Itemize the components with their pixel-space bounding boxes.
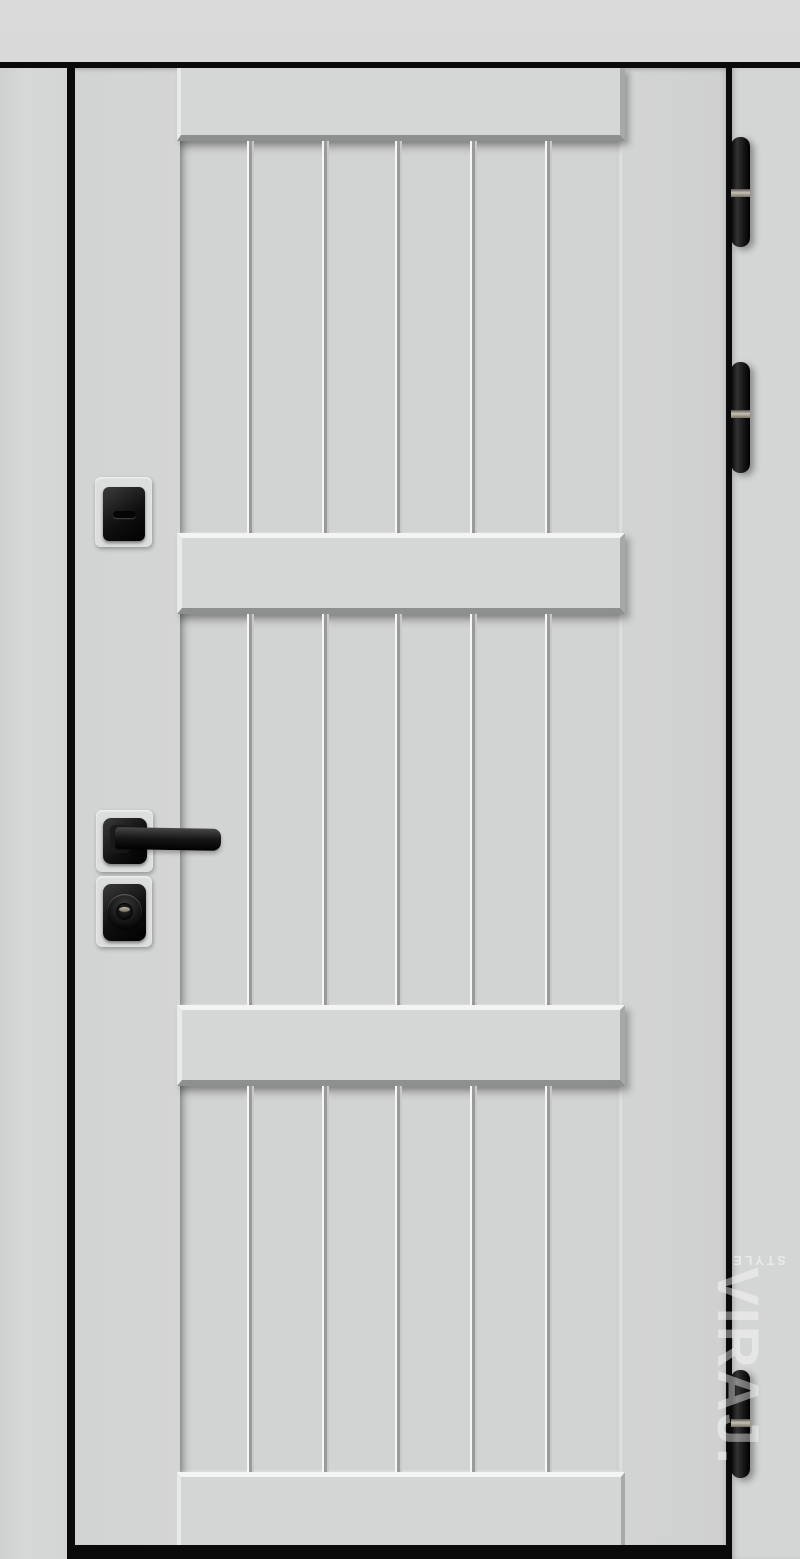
plank-groove: [247, 614, 254, 1005]
hinge-band: [731, 189, 750, 197]
plank-groove: [395, 614, 402, 1005]
cylinder-key-glint: [119, 907, 130, 912]
plank-section-bottom: [180, 1086, 622, 1472]
plank-groove: [247, 141, 254, 533]
plank-groove: [395, 1086, 402, 1472]
left-sidepanel: [0, 68, 67, 1559]
watermark-style-text: STYLE: [713, 1252, 800, 1268]
watermark-brand-text: VIRAJ.: [702, 1267, 772, 1457]
cylinder-escutcheon: [103, 884, 146, 941]
hinge-middle: [731, 362, 750, 473]
door-top-rail: [177, 68, 625, 141]
top-frame-line: [0, 62, 800, 68]
door-leaf: [75, 68, 726, 1545]
door-bottom-rail: [177, 1472, 625, 1545]
plank-section-top: [180, 141, 622, 533]
plank-groove: [322, 614, 329, 1005]
plank-section-middle: [180, 614, 622, 1005]
plank-groove: [545, 141, 552, 533]
plank-groove: [322, 1086, 329, 1472]
hinge-band: [731, 410, 750, 418]
handle-lever: [115, 827, 221, 851]
plank-groove: [545, 614, 552, 1005]
bottom-frame-line: [67, 1545, 732, 1559]
plank-groove: [470, 614, 477, 1005]
plank-groove: [545, 1086, 552, 1472]
keyhole-cover: [103, 487, 145, 541]
left-frame-line: [67, 68, 75, 1559]
plank-groove: [322, 141, 329, 533]
plank-groove: [470, 1086, 477, 1472]
keyhole-slot: [113, 511, 136, 518]
plank-groove: [247, 1086, 254, 1472]
plank-groove: [395, 141, 402, 533]
hinge-top: [731, 137, 750, 247]
cylinder-face: [107, 894, 142, 929]
door-mid-rail-2: [177, 1005, 625, 1086]
door-product-photo: STYLE VIRAJ.: [0, 0, 800, 1559]
door-mid-rail-1: [177, 533, 625, 614]
plank-groove: [470, 141, 477, 533]
cylinder-keyhole: [116, 903, 133, 920]
